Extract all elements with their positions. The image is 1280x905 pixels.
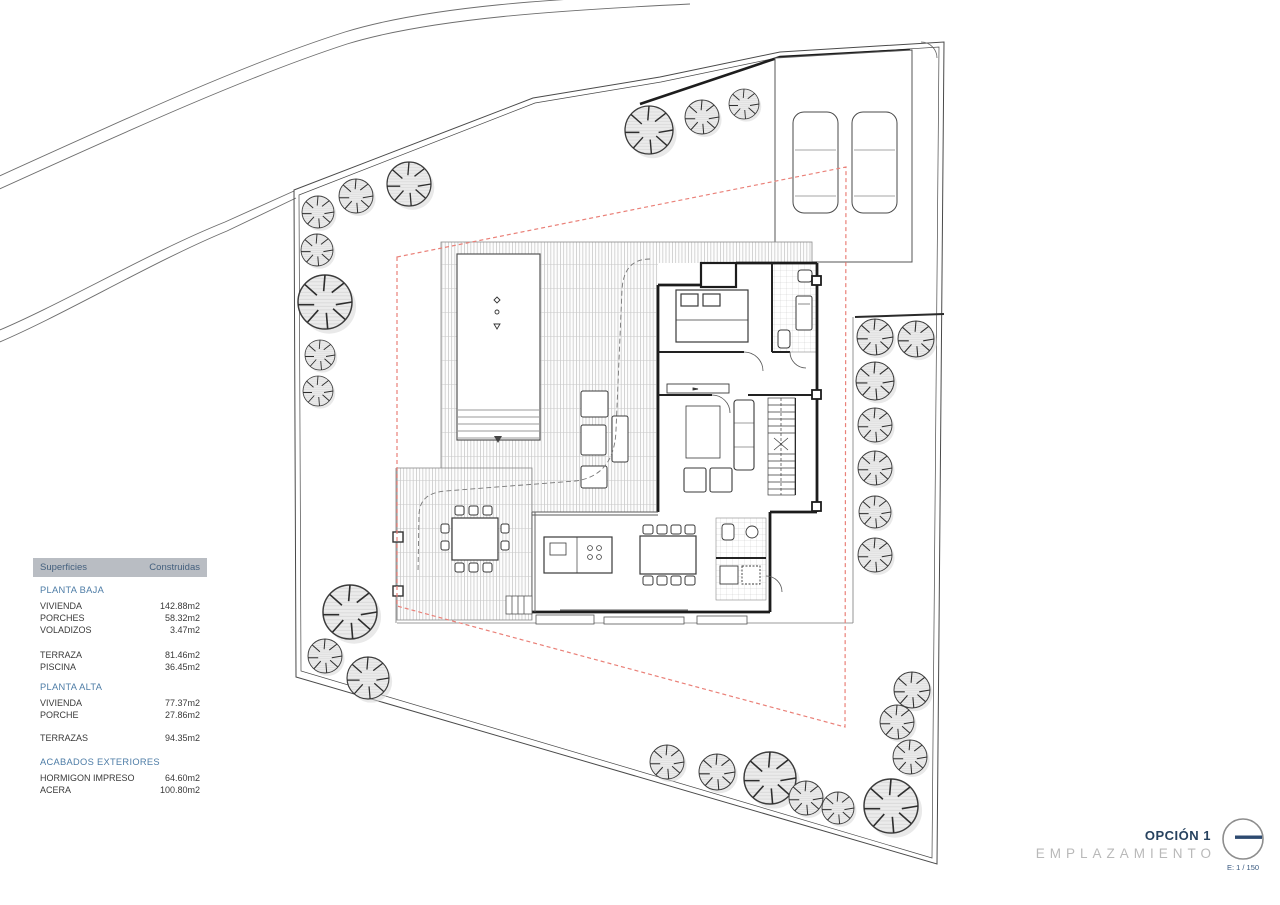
tree-icon xyxy=(339,179,376,216)
section-title: PLANTA ALTA xyxy=(40,681,205,693)
table-row: ACERA100.80m2 xyxy=(40,784,205,796)
tree-icon xyxy=(685,100,722,137)
row-value: 36.45m2 xyxy=(145,661,200,673)
table-row: PORCHES58.32m2 xyxy=(40,612,205,624)
header-col-construidas: Construidas xyxy=(149,562,200,574)
tree-icon xyxy=(729,89,761,122)
areas-section: ACABADOS EXTERIORESHORMIGON IMPRESO64.60… xyxy=(40,756,205,796)
table-row: TERRAZA81.46m2 xyxy=(40,649,205,661)
tree-icon xyxy=(858,451,895,488)
table-row: VIVIENDA77.37m2 xyxy=(40,697,205,709)
areas-section: TERRAZAS94.35m2 xyxy=(40,732,205,744)
row-label: ACERA xyxy=(40,784,145,796)
tree-icon xyxy=(298,275,356,334)
tree-icon xyxy=(301,234,335,269)
tree-icon xyxy=(699,754,738,793)
tree-icon xyxy=(347,657,392,703)
tree-icon xyxy=(859,496,893,531)
section-title: ACABADOS EXTERIORES xyxy=(40,756,205,768)
tree-icon xyxy=(625,106,677,158)
areas-table-header: Superficies Construidas xyxy=(33,558,207,577)
pool xyxy=(457,254,540,443)
tree-icon xyxy=(789,781,826,818)
scale-label: E: 1 / 150 xyxy=(1227,863,1259,872)
areas-table: Superficies Construidas PLANTA BAJAVIVIE… xyxy=(33,558,207,796)
tree-icon xyxy=(822,792,856,827)
tree-icon xyxy=(864,779,922,838)
bed xyxy=(676,290,748,342)
row-value: 77.37m2 xyxy=(145,697,200,709)
table-row: PORCHE27.86m2 xyxy=(40,709,205,721)
tree-icon xyxy=(857,319,896,358)
tv-console xyxy=(667,384,729,393)
kitchen-island xyxy=(544,537,612,573)
stairs xyxy=(768,398,795,495)
row-label: PORCHE xyxy=(40,709,145,721)
row-label: TERRAZAS xyxy=(40,732,145,744)
option-label: OPCIÓN 1 xyxy=(1036,828,1211,843)
drawing-title: EMPLAZAMIENTO xyxy=(1036,846,1216,861)
tree-icon xyxy=(858,408,895,445)
row-value: 100.80m2 xyxy=(145,784,200,796)
tree-icon xyxy=(856,362,897,403)
row-label: PORCHES xyxy=(40,612,145,624)
row-label: VOLADIZOS xyxy=(40,624,145,636)
table-row: TERRAZAS94.35m2 xyxy=(40,732,205,744)
row-value: 3.47m2 xyxy=(145,624,200,636)
header-col-superficies: Superficies xyxy=(40,562,87,574)
table-row: VIVIENDA142.88m2 xyxy=(40,600,205,612)
table-row: HORMIGON IMPRESO64.60m2 xyxy=(40,772,205,784)
pergola-post xyxy=(393,586,403,596)
row-value: 94.35m2 xyxy=(145,732,200,744)
table-row: VOLADIZOS3.47m2 xyxy=(40,624,205,636)
areas-section: PLANTA ALTAVIVIENDA77.37m2PORCHE27.86m2 xyxy=(40,681,205,721)
row-value: 58.32m2 xyxy=(145,612,200,624)
tree-icon xyxy=(323,585,381,644)
section-title: PLANTA BAJA xyxy=(40,584,205,596)
row-value: 27.86m2 xyxy=(145,709,200,721)
areas-section: TERRAZA81.46m2PISCINA36.45m2 xyxy=(40,649,205,673)
tree-icon xyxy=(303,376,335,409)
tree-icon xyxy=(898,321,937,360)
gate-arc xyxy=(921,42,937,58)
row-label: VIVIENDA xyxy=(40,600,145,612)
tree-icon xyxy=(893,740,930,777)
tree-icon xyxy=(650,745,687,782)
tree-icon xyxy=(387,162,434,210)
tree-icon xyxy=(308,639,345,676)
tree-icon xyxy=(305,340,337,373)
car-icon xyxy=(852,112,897,213)
row-value: 142.88m2 xyxy=(145,600,200,612)
tree-icon xyxy=(302,196,336,231)
pergola-post xyxy=(393,532,403,542)
closet xyxy=(701,263,736,287)
row-label: PISCINA xyxy=(40,661,145,673)
row-value: 64.60m2 xyxy=(145,772,200,784)
row-label: VIVIENDA xyxy=(40,697,145,709)
title-block: OPCIÓN 1 EMPLAZAMIENTO E: 1 / 150 xyxy=(990,816,1266,872)
areas-section: PLANTA BAJAVIVIENDA142.88m2PORCHES58.32m… xyxy=(40,584,205,636)
tree-icon xyxy=(858,538,895,575)
car-icon xyxy=(793,112,838,213)
areas-sections: PLANTA BAJAVIVIENDA142.88m2PORCHES58.32m… xyxy=(33,584,207,796)
row-label: TERRAZA xyxy=(40,649,145,661)
table-row: PISCINA36.45m2 xyxy=(40,661,205,673)
row-value: 81.46m2 xyxy=(145,649,200,661)
compass-logo-icon xyxy=(1220,816,1266,862)
row-label: HORMIGON IMPRESO xyxy=(40,772,145,784)
